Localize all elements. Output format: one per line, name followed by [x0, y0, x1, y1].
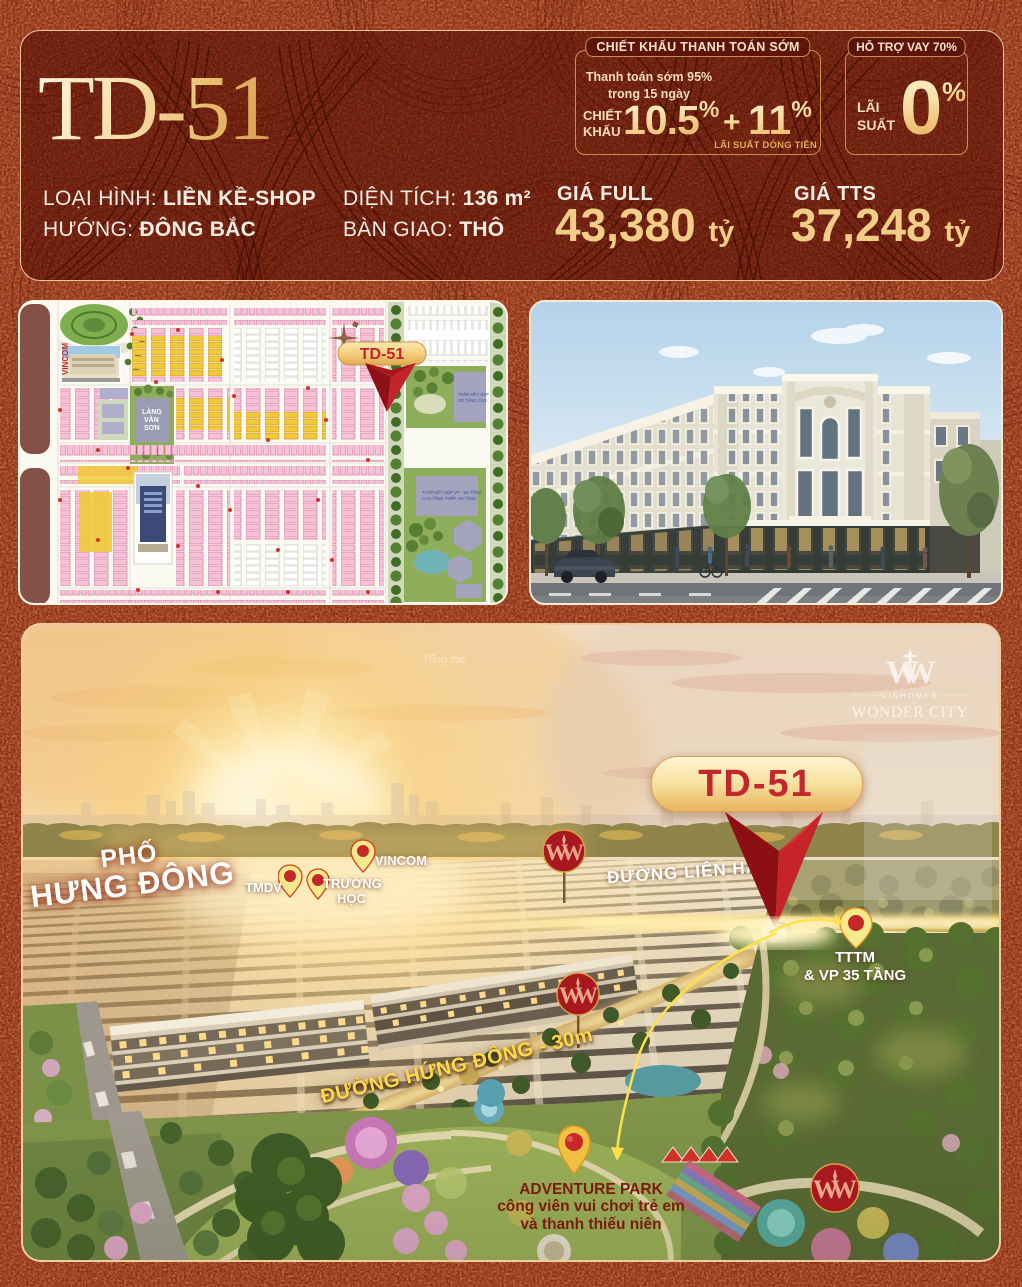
- svg-text:VINCOM: VINCOM: [61, 343, 70, 375]
- svg-text:XD TẦNG CAO: XD TẦNG CAO: [458, 398, 488, 403]
- svg-text:VĂN: VĂN: [144, 415, 159, 424]
- svg-text:WONDER CITY: WONDER CITY: [852, 704, 969, 721]
- svg-text:THẤP KẾT HỢP VP - XD TẦNG: THẤP KẾT HỢP VP - XD TẦNG: [422, 490, 482, 495]
- svg-text:CAO TẦNG THẤP, XD TẦNG: CAO TẦNG THẤP, XD TẦNG: [422, 496, 476, 501]
- svg-text:VINHOMES: VINHOMES: [881, 691, 939, 700]
- svg-text:TD-51: TD-51: [360, 346, 405, 363]
- svg-text:SƠN: SƠN: [144, 425, 160, 432]
- svg-text:LÀNG: LÀNG: [142, 407, 162, 416]
- svg-text:W: W: [903, 655, 936, 691]
